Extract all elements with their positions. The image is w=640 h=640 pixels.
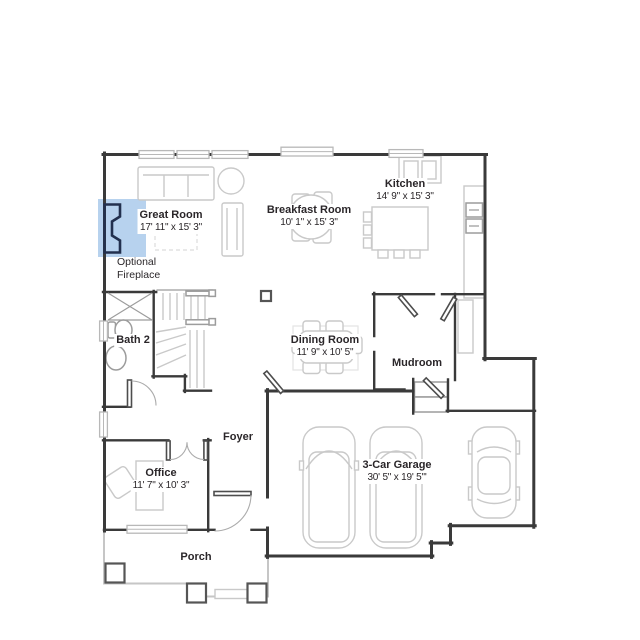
optional-fireplace-note: Optional Fireplace [117,256,160,282]
porch-post [248,584,267,603]
room-label-great-room: Great Room 17' 11" x 15' 3" [138,209,205,234]
room-name: Foyer [221,431,255,444]
room-name: 3-Car Garage [360,459,433,472]
room-name: Bath 2 [114,334,152,347]
kitchen-island [372,207,428,250]
room-dims: 11' 9" x 10' 5" [295,347,356,359]
room-label-mudroom: Mudroom [390,357,444,370]
stair-railing [186,320,211,325]
room-label-kitchen: Kitchen 14' 9" x 15' 3" [374,178,435,203]
sofa [138,167,214,200]
coffee-table [155,232,197,250]
room-dims: 14' 9" x 15' 3" [374,191,435,203]
garage-cars [300,427,520,548]
room-name: Porch [178,551,213,564]
bath-door [128,380,132,407]
room-dims: 11' 7" x 10' 3" [131,480,192,492]
pantry-shelves [458,300,473,353]
porch-steps [215,590,248,599]
porch-outline [104,531,268,603]
office-door [167,441,171,460]
chaise [222,203,243,256]
mudroom-closet-door [398,295,417,317]
office-door [204,441,208,460]
room-label-porch: Porch [178,551,213,564]
staircase [156,290,215,388]
room-label-garage: 3-Car Garage 30' 5" x 19' 5"' [360,459,433,484]
room-name: Kitchen [383,178,427,191]
room-dims: 10' 1" x 15' 3" [278,217,339,229]
room-dims: 17' 11" x 15' 3" [138,222,204,234]
porch-post [187,584,206,603]
room-label-dining-room: Dining Room 11' 9" x 10' 5" [289,334,361,359]
room-name: Breakfast Room [265,204,353,217]
floor-plan-drawing [0,0,640,640]
room-label-foyer: Foyer [221,431,255,444]
room-name: Dining Room [289,334,361,347]
sink [106,346,126,370]
room-dims: 30' 5" x 19' 5"' [365,472,428,484]
room-name: Mudroom [390,357,444,370]
note-line: Optional [117,256,160,269]
stair-railing [186,291,211,296]
note-line: Fireplace [117,269,160,282]
room-name: Office [143,467,178,480]
room-label-office: Office 11' 7" x 10' 3" [131,467,192,492]
closet-symbol [108,293,152,320]
room-name: Great Room [138,209,205,222]
sedan-car [469,427,520,518]
floor-plan: Great Room 17' 11" x 15' 3" Breakfast Ro… [0,0,640,640]
column-marker [261,291,271,301]
porch-post [106,564,125,583]
room-label-bath-2: Bath 2 [114,334,152,347]
front-door [214,492,251,496]
round-chair [218,168,244,194]
room-label-breakfast-room: Breakfast Room 10' 1" x 15' 3" [265,204,353,229]
